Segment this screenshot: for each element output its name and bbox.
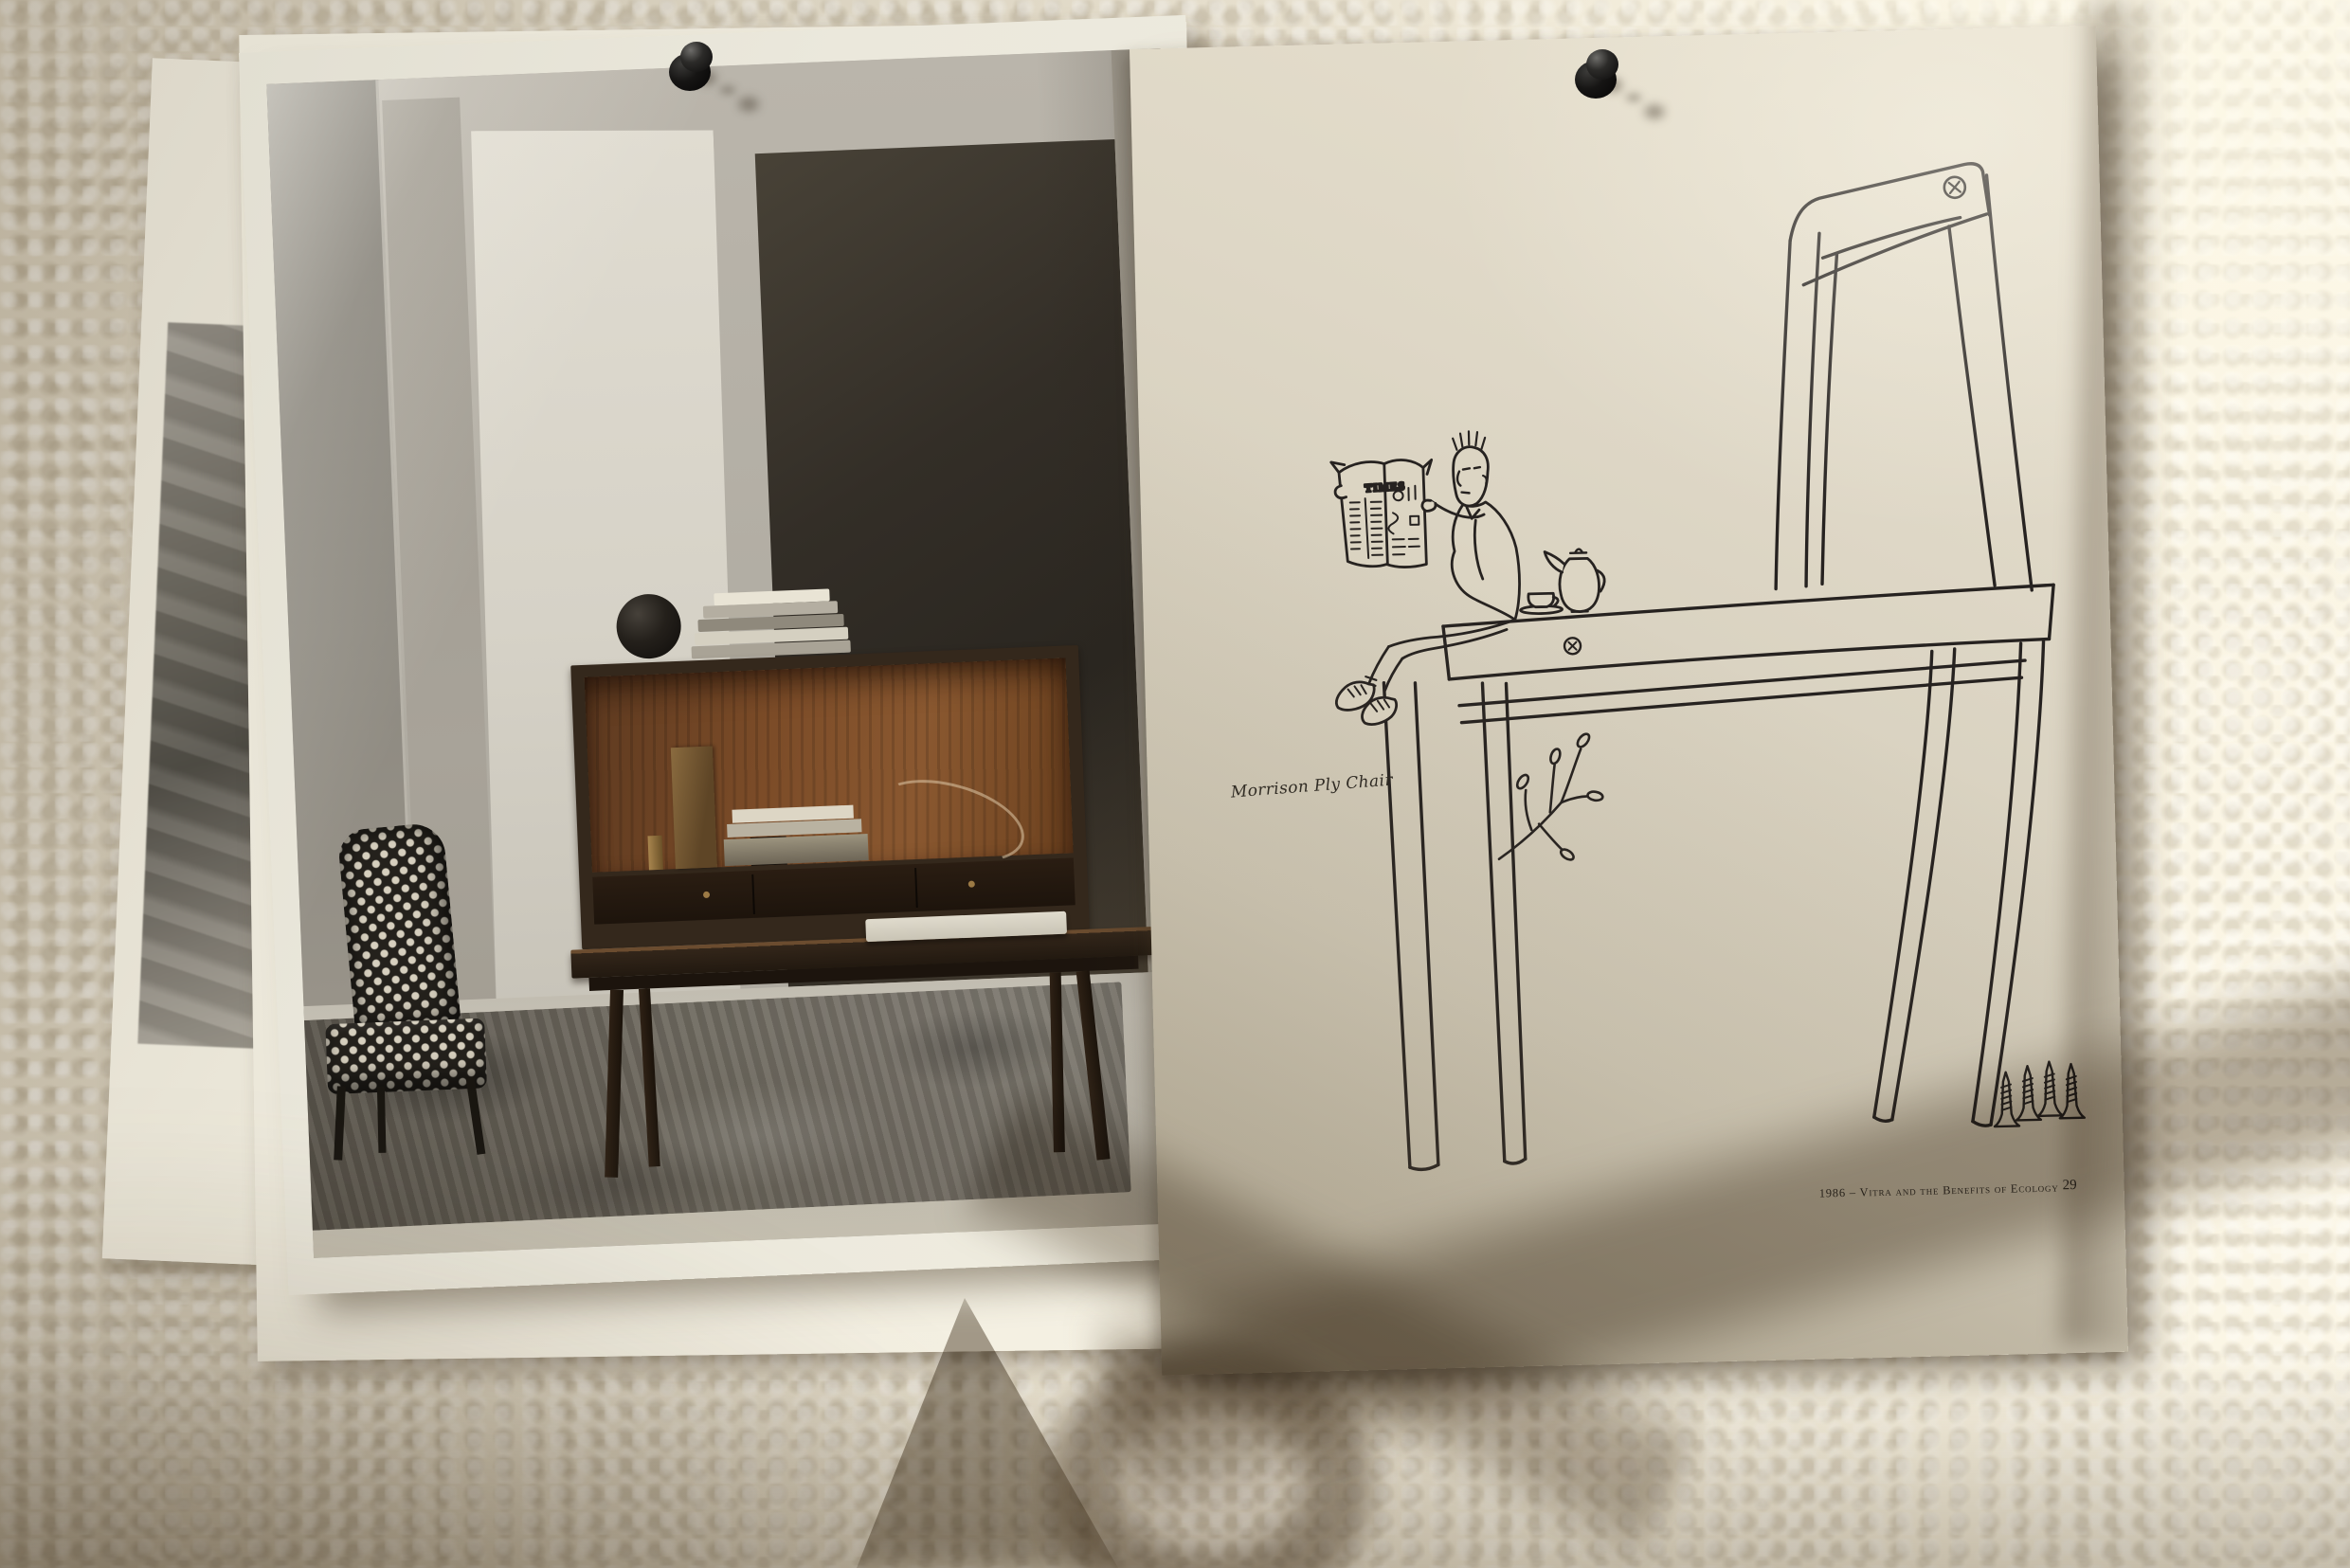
chair-leg	[466, 1076, 486, 1154]
secretary-desk	[568, 561, 1171, 1190]
dotted-chair	[314, 822, 507, 1166]
chair-seat	[325, 1018, 487, 1094]
newspaper-masthead: TIMES	[1365, 481, 1406, 496]
paper-stack	[722, 804, 868, 867]
black-sphere	[615, 593, 682, 660]
giant-chair	[1371, 162, 2067, 1170]
wall: TIMES	[0, 0, 2350, 1568]
brass-cylinder	[648, 836, 663, 871]
pin-head	[1586, 49, 1618, 80]
right-page[interactable]: TIMES	[1130, 26, 2128, 1376]
page-number: 29	[2062, 1178, 2076, 1194]
hutch-interior	[585, 658, 1074, 873]
interior-photo	[266, 48, 1207, 1258]
screw-head-icon	[1553, 177, 1976, 655]
brass-box	[671, 747, 717, 870]
chair-back	[336, 821, 461, 1036]
chair-drawing: TIMES	[1130, 26, 2128, 1376]
man-reading-newspaper: TIMES	[1329, 428, 1607, 726]
wood-screws	[1993, 1061, 2085, 1126]
desk-leg	[639, 988, 660, 1166]
left-page[interactable]	[239, 15, 1236, 1295]
desk-leg	[1050, 972, 1065, 1152]
chair-leg	[377, 1087, 387, 1153]
desk-leg	[605, 990, 624, 1178]
book-stack	[689, 588, 851, 663]
desk-hutch	[570, 645, 1090, 949]
push-pin-right[interactable]	[1575, 49, 1689, 144]
handwritten-note: Morrison Ply Chair	[1229, 770, 1394, 802]
pin-head	[680, 42, 713, 72]
cup-and-pot	[1519, 549, 1605, 614]
push-pin-left[interactable]	[669, 42, 783, 136]
newspaper	[1339, 460, 1427, 568]
desk-leg	[1076, 970, 1111, 1160]
chair-leg	[334, 1086, 346, 1160]
